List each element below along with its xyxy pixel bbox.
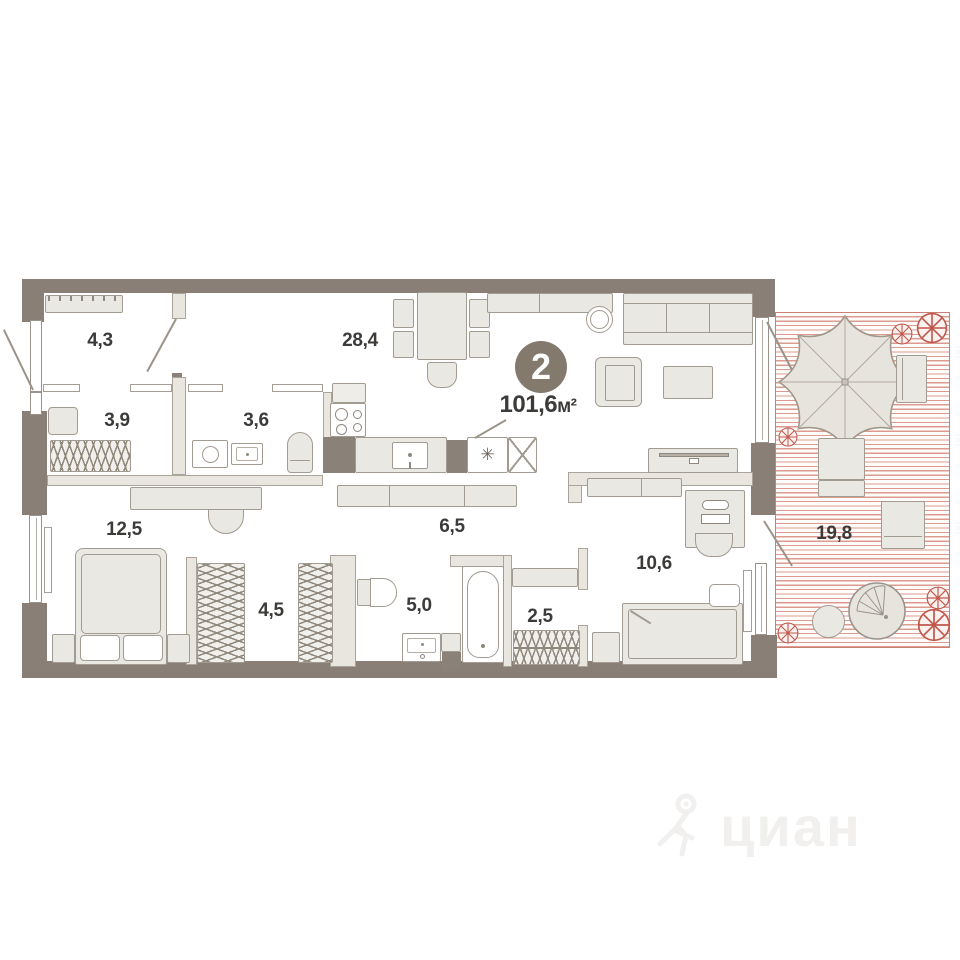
dining-chair <box>469 331 490 358</box>
room-label-corridor: 6,5 <box>439 516 465 538</box>
wall-right-mid <box>751 443 775 515</box>
wall-left-top <box>22 279 44 322</box>
kids-bed <box>622 603 743 665</box>
partition-hall <box>172 293 186 319</box>
tv-stand <box>648 448 738 473</box>
nightstand <box>167 634 190 663</box>
kids-dresser <box>587 478 682 497</box>
desk-chair <box>208 509 244 534</box>
radiator <box>743 570 752 632</box>
partition-bathroom-west <box>330 555 356 667</box>
kids-desk-chair <box>695 533 733 557</box>
dining-table <box>417 292 467 360</box>
dining-chair <box>427 362 457 388</box>
partition-bath-laundry <box>503 555 512 667</box>
kitchen-column <box>323 437 355 473</box>
total-area-unit: м² <box>557 396 576 417</box>
toilet <box>370 578 397 607</box>
entrance-door-frame <box>30 320 42 392</box>
bedroom-window <box>29 515 42 603</box>
room-label-bedroom: 12,5 <box>106 519 142 541</box>
watermark: циан <box>652 792 862 860</box>
plant-icon <box>777 622 799 644</box>
armchair <box>595 357 642 407</box>
hall-stool <box>48 407 78 435</box>
terrace-side-table <box>812 605 845 638</box>
double-bed <box>75 548 167 665</box>
kitchen-tall-cabinet <box>508 437 537 473</box>
partition-kids-stub <box>568 485 582 503</box>
wardrobe <box>50 440 131 472</box>
wall-left-mid <box>22 411 47 515</box>
bedroom-desk <box>130 487 262 510</box>
total-area-value: 101,6 <box>500 391 558 418</box>
toilet-tank <box>357 579 371 606</box>
hanging-chair-icon <box>847 581 907 641</box>
kitchen-counter <box>355 437 447 473</box>
kids-nightstand <box>592 632 620 663</box>
room-label-laundry: 2,5 <box>527 606 553 628</box>
hall-door-leaf <box>146 319 177 373</box>
entrance-sidelight <box>30 392 42 415</box>
sink <box>231 443 263 465</box>
sofa <box>623 293 753 345</box>
water-heater <box>287 432 313 473</box>
terrace-lounge-chair-back <box>818 480 865 497</box>
drying-rail <box>513 630 580 665</box>
watermark-person-icon <box>652 792 710 860</box>
terrace-lounge-chair <box>818 438 865 480</box>
cabinet-door-swing <box>474 419 506 439</box>
floorplan-canvas: ✳ <box>0 0 960 960</box>
terrace-glass-door <box>755 317 769 443</box>
partition-laundry-east-top <box>578 548 588 590</box>
room-label-kitchen: 28,4 <box>342 330 378 352</box>
wardrobe <box>197 563 245 663</box>
nightstand <box>52 634 75 663</box>
rooms-count: 2 <box>531 346 551 388</box>
plant-pot <box>586 306 613 333</box>
wall-right-bottom <box>751 635 777 678</box>
room-label-bathroom: 5,0 <box>406 595 432 617</box>
kids-room-window <box>755 563 767 635</box>
partition-segment <box>130 384 172 392</box>
partition-segment <box>188 384 223 392</box>
snowflake-icon: ✳ <box>480 445 494 465</box>
plant-icon <box>917 608 951 642</box>
room-label-hall: 4,3 <box>87 330 113 352</box>
stove <box>330 403 366 437</box>
refrigerator: ✳ <box>467 437 508 473</box>
room-label-dressing: 3,9 <box>104 410 130 432</box>
radiator <box>44 527 52 593</box>
laundry-shelf <box>512 568 578 587</box>
dining-chair <box>393 331 414 358</box>
plant-icon <box>778 427 798 447</box>
room-label-kids: 10,6 <box>636 553 672 575</box>
room-label-bath-small: 3,6 <box>243 410 269 432</box>
kitchen-cabinet <box>332 383 366 403</box>
hall-closet <box>45 295 123 313</box>
kitchen-island <box>337 485 517 507</box>
coffee-table <box>663 366 713 399</box>
plant-icon <box>926 586 950 610</box>
wall-top <box>22 279 770 293</box>
room-label-terrace: 19,8 <box>816 523 852 545</box>
bathroom-column <box>442 652 461 669</box>
watermark-text: циан <box>720 794 862 859</box>
wall-right-top <box>751 279 775 317</box>
bathroom-cabinet <box>441 633 461 652</box>
partition-segment <box>43 384 80 392</box>
partition-segment <box>272 384 323 392</box>
kitchen-column <box>447 440 467 473</box>
terrace-sunbed <box>881 501 925 549</box>
terrace-chair <box>896 355 927 403</box>
total-area-label: 101,6м² <box>500 391 577 419</box>
rooms-count-badge: 2 <box>515 341 567 393</box>
room-label-closet: 4,5 <box>258 600 284 622</box>
plant-icon <box>891 323 913 345</box>
wardrobe <box>298 563 333 663</box>
washing-machine <box>192 440 228 468</box>
dining-chair <box>393 299 414 328</box>
bathtub <box>462 566 504 663</box>
pillow <box>709 584 740 607</box>
bathroom-sink <box>402 633 441 662</box>
partition-dressing-bath <box>172 377 186 475</box>
plant-icon <box>916 312 948 344</box>
partition-bedroom-north <box>47 475 323 486</box>
